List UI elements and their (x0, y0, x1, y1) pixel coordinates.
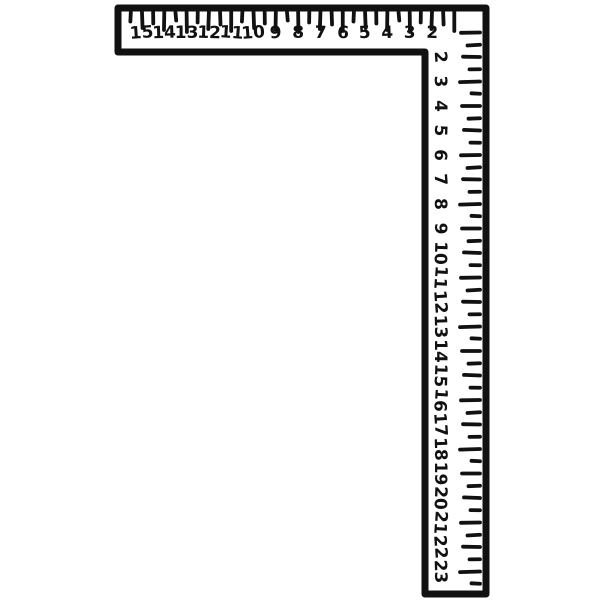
v-scale-number: 12 (429, 289, 451, 314)
v-scale-number: 20 (430, 486, 451, 511)
v-scale-number: 22 (429, 534, 451, 559)
figure-background (0, 0, 600, 600)
v-scale-number: 13 (430, 314, 451, 338)
h-tick-mark (175, 12, 176, 21)
v-tick-mark (464, 252, 480, 253)
v-scale-number: 3 (430, 75, 450, 88)
h-scale-number: 2 (426, 23, 439, 43)
v-scale-number: 21 (429, 510, 451, 535)
v-tick-mark (468, 535, 481, 536)
v-scale-number: 14 (430, 339, 450, 363)
v-scale-number: 8 (430, 198, 450, 211)
h-scale-number: 15 (129, 22, 154, 44)
v-scale-number: 16 (429, 387, 451, 412)
v-scale-number: 19 (430, 462, 450, 486)
h-scale-number: 4 (381, 23, 394, 43)
v-tick-mark (460, 82, 480, 83)
v-scale-number: 5 (430, 124, 450, 137)
h-scale-number: 6 (337, 23, 350, 44)
h-scale-number: 7 (314, 23, 327, 43)
v-scale-number: 11 (429, 265, 451, 290)
v-tick-mark (460, 572, 480, 573)
v-scale-number: 17 (429, 412, 451, 437)
h-scale-number: 9 (269, 23, 282, 43)
v-scale-number: 23 (430, 559, 451, 583)
h-scale-number: 8 (292, 23, 304, 43)
v-scale-number: 9 (430, 223, 450, 235)
h-scale-number: 14 (152, 23, 177, 44)
v-tick-mark (468, 412, 481, 413)
v-tick-mark (468, 45, 481, 46)
v-scale-number: 4 (430, 100, 450, 112)
h-tick-mark (399, 12, 400, 21)
h-scale-number: 10 (241, 22, 266, 44)
v-tick-mark (468, 290, 481, 291)
v-tick-mark (460, 449, 480, 450)
framing-square-figure: 15141312111098765432 2345678910111213141… (0, 0, 600, 600)
h-scale-number: 5 (358, 23, 371, 44)
v-scale-number: 18 (430, 437, 451, 461)
v-tick-mark (464, 130, 480, 131)
h-scale-number: 3 (404, 23, 416, 43)
framing-square-canvas: 15141312111098765432 2345678910111213141… (0, 0, 600, 600)
vertical-scale-numbers: 234567891011121314151617181920212223 (429, 50, 451, 583)
v-tick-mark (468, 167, 481, 168)
v-tick-mark (464, 375, 480, 376)
v-tick-mark (464, 497, 480, 498)
v-scale-number: 2 (430, 50, 451, 63)
v-scale-number: 15 (430, 363, 451, 387)
h-tick-mark (287, 12, 288, 21)
v-scale-number: 7 (430, 173, 451, 186)
h-scale-number: 13 (175, 23, 199, 43)
h-scale-number: 12 (197, 23, 221, 44)
v-tick-mark (460, 204, 480, 205)
v-tick-mark (460, 327, 480, 328)
v-scale-number: 6 (430, 148, 451, 161)
v-scale-number: 10 (430, 241, 451, 266)
